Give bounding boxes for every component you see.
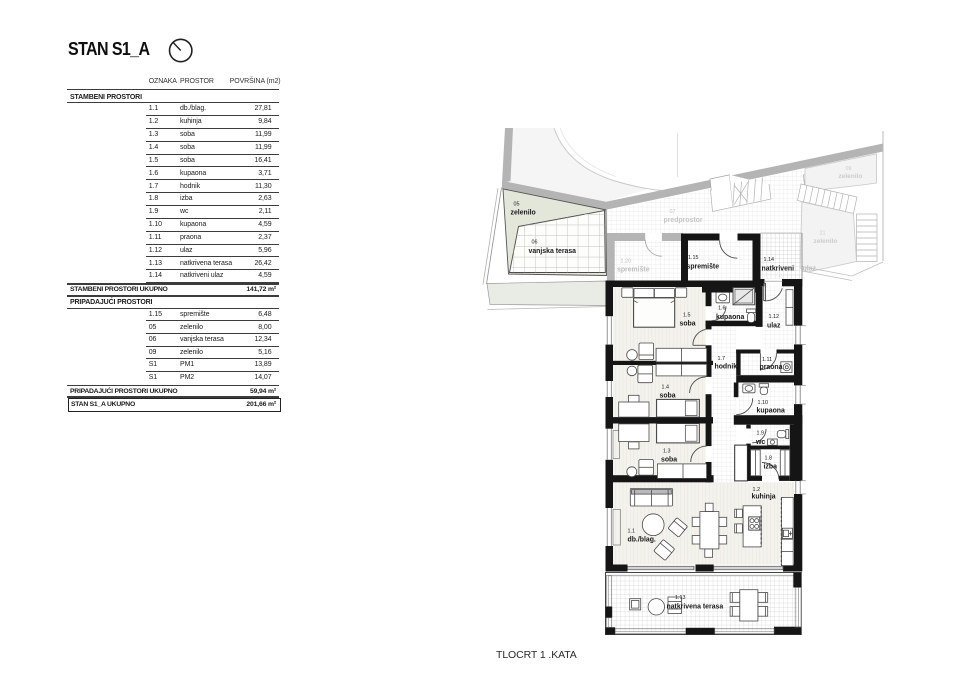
svg-text:natkrivena terasa: natkrivena terasa — [667, 604, 724, 611]
svg-text:spremište: spremište — [617, 267, 650, 274]
svg-text:spremište: spremište — [687, 264, 720, 271]
svg-text:07: 07 — [670, 209, 676, 215]
svg-text:kupaona: kupaona — [716, 314, 745, 321]
svg-text:1.15: 1.15 — [688, 255, 699, 261]
svg-text:1.20: 1.20 — [621, 259, 632, 265]
svg-text:09: 09 — [846, 166, 852, 172]
svg-text:soba: soba — [660, 393, 676, 400]
svg-text:predprostor: predprostor — [664, 217, 703, 224]
svg-text:zelenilo: zelenilo — [814, 238, 838, 245]
svg-text:21: 21 — [820, 231, 826, 237]
svg-text:1.6: 1.6 — [718, 306, 726, 312]
svg-text:1.4: 1.4 — [662, 385, 670, 391]
svg-text:1.8: 1.8 — [765, 456, 773, 462]
svg-text:ulaz: ulaz — [767, 323, 781, 330]
svg-text:natkriveni: natkriveni — [762, 266, 795, 273]
svg-text:soba: soba — [661, 457, 677, 464]
svg-text:1.9: 1.9 — [757, 431, 765, 437]
svg-text:1.14: 1.14 — [764, 257, 775, 263]
svg-text:db./blag.: db./blag. — [628, 537, 656, 544]
svg-text:1.5: 1.5 — [683, 313, 691, 319]
svg-text:1.7: 1.7 — [718, 356, 726, 362]
svg-text:1.2: 1.2 — [753, 487, 761, 493]
svg-text:06: 06 — [532, 240, 538, 246]
svg-text:praona: praona — [760, 364, 783, 371]
svg-text:ulaz: ulaz — [803, 266, 817, 273]
svg-text:izba: izba — [764, 464, 778, 471]
svg-text:1.13: 1.13 — [675, 595, 686, 601]
svg-text:kupaona: kupaona — [757, 408, 786, 415]
svg-text:zelenilo: zelenilo — [839, 173, 863, 180]
svg-text:soba: soba — [680, 321, 696, 328]
svg-text:hodnik: hodnik — [715, 364, 738, 371]
svg-text:1.3: 1.3 — [663, 449, 671, 455]
svg-text:1.11: 1.11 — [762, 357, 772, 363]
svg-text:vanjska terasa: vanjska terasa — [529, 248, 577, 255]
svg-text:1.12: 1.12 — [769, 314, 780, 320]
svg-text:05: 05 — [514, 202, 520, 208]
svg-text:1.1: 1.1 — [628, 529, 636, 535]
svg-text:1.10: 1.10 — [758, 400, 769, 406]
svg-text:zelenilo: zelenilo — [511, 210, 536, 217]
svg-text:kuhinja: kuhinja — [752, 494, 776, 501]
svg-text:wc: wc — [755, 439, 765, 446]
